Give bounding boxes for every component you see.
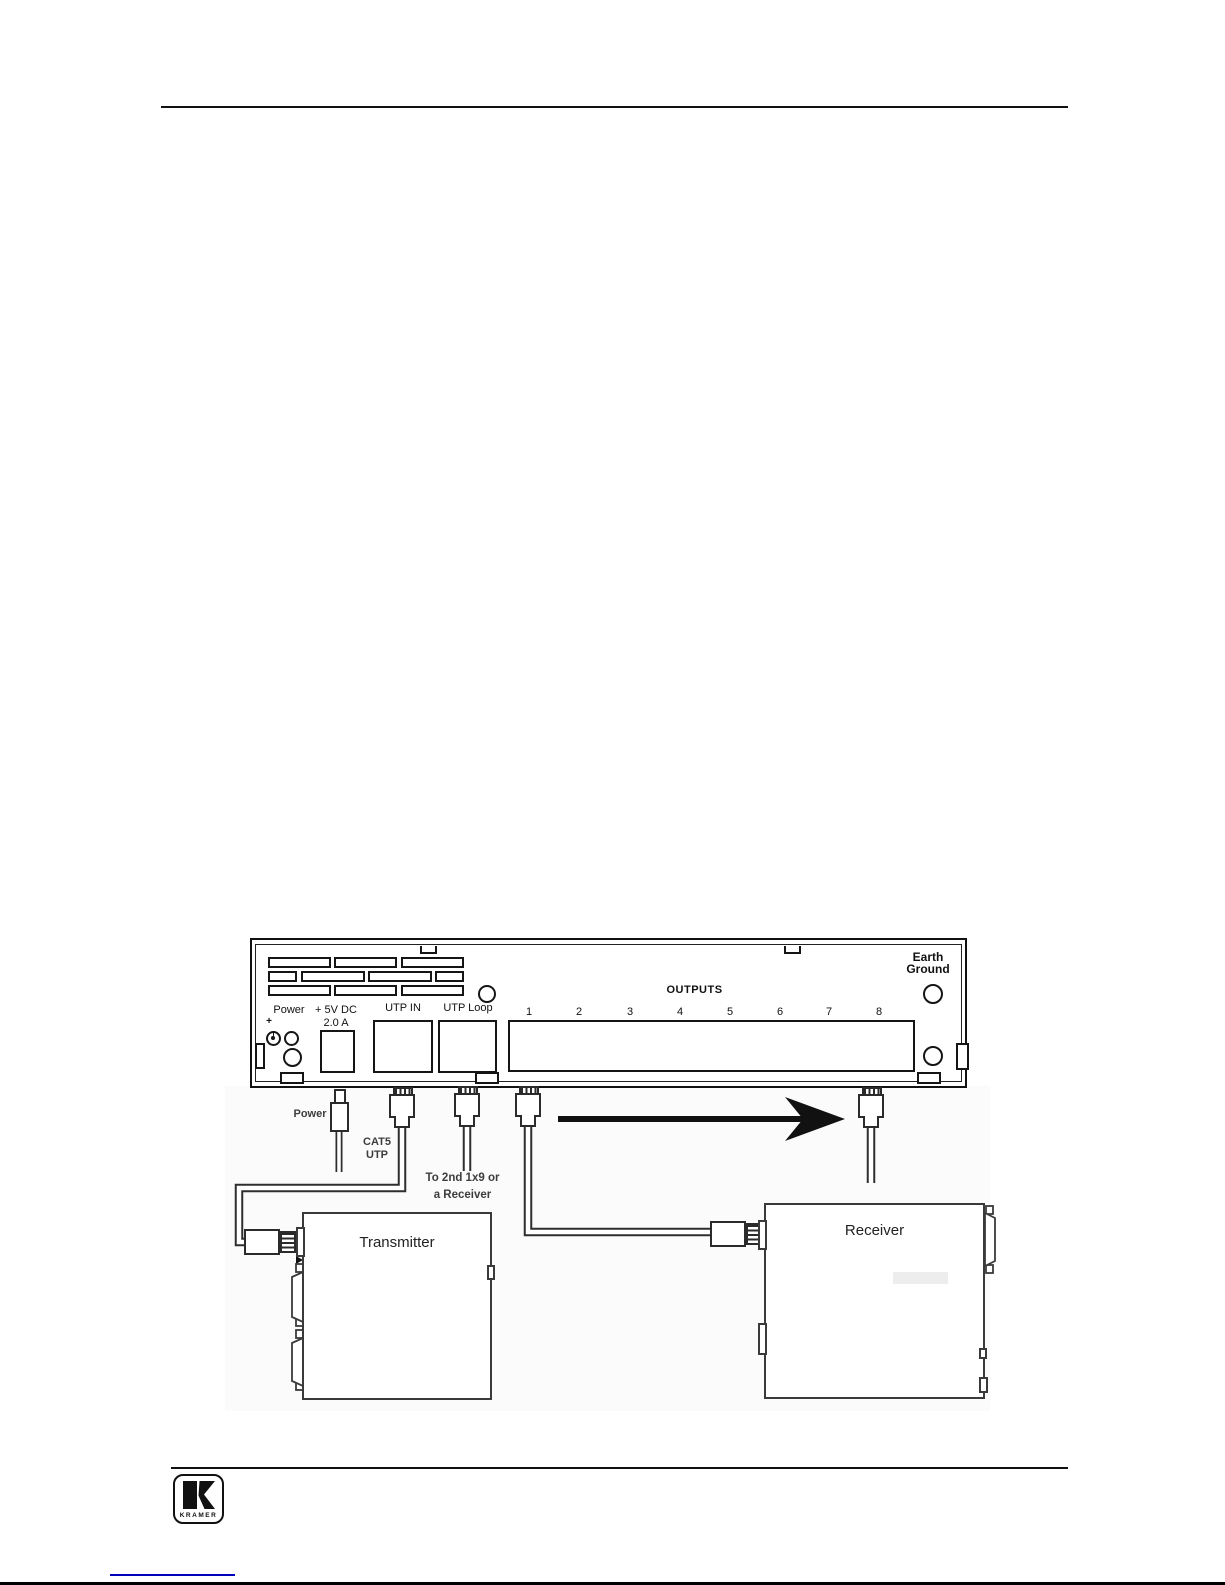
transmitter-rj45-port xyxy=(296,1227,305,1257)
utp-in-label: UTP IN xyxy=(372,1002,434,1014)
output-number-1: 1 xyxy=(517,1006,541,1018)
manual-page: Earth Ground OUTPUTS 1 2 3 4 5 6 7 8 Pow… xyxy=(0,0,1225,1585)
vent-slot xyxy=(334,957,397,968)
screw-hole-right xyxy=(923,1046,943,1066)
panel-bottom-notch xyxy=(280,1072,304,1084)
transmitter-plug-icon xyxy=(244,1229,294,1255)
transmitter-label: Transmitter xyxy=(304,1234,490,1251)
panel-bottom-notch xyxy=(917,1072,941,1084)
power-plug-icon xyxy=(330,1102,349,1132)
panel-right-tab xyxy=(956,1043,969,1070)
transmitter-right-tab xyxy=(487,1265,495,1280)
rear-panel: Earth Ground OUTPUTS 1 2 3 4 5 6 7 8 Pow… xyxy=(250,938,967,1088)
output8-plug-icon xyxy=(858,1087,886,1127)
receiver-plug-icon xyxy=(710,1221,760,1247)
vent-slot xyxy=(301,971,365,982)
outputs-label: OUTPUTS xyxy=(642,984,747,996)
transmitter-box: Transmitter xyxy=(302,1212,492,1400)
utp-label: UTP xyxy=(366,1149,388,1161)
rj45-body xyxy=(389,1094,415,1118)
kramer-logo: KRAMER xyxy=(173,1474,224,1524)
rj45-body xyxy=(710,1221,746,1247)
earth-ground-label2: Ground xyxy=(906,962,949,976)
receiver-left-tab xyxy=(758,1323,767,1355)
utp-loop-socket xyxy=(438,1020,497,1073)
cat5-label: CAT5 xyxy=(363,1136,391,1148)
receiver-label: Receiver xyxy=(766,1222,983,1239)
vent-slot xyxy=(268,971,297,982)
dc-jack-dot xyxy=(271,1036,275,1040)
loop-plug-icon xyxy=(454,1086,482,1126)
power-cable-label: Power xyxy=(288,1108,332,1121)
receiver-box: Receiver xyxy=(764,1203,985,1399)
vent-slot xyxy=(268,957,331,968)
hyperlink-underline[interactable] xyxy=(110,1574,235,1576)
rj45-neck xyxy=(459,1115,475,1127)
rj45-body xyxy=(244,1229,280,1255)
outputs-socket-strip xyxy=(508,1020,915,1072)
footer-rule xyxy=(171,1467,1068,1469)
rj45-body xyxy=(858,1094,884,1118)
vent-slot xyxy=(268,985,331,996)
earth-ground-terminal xyxy=(923,984,943,1004)
kramer-logo-text: KRAMER xyxy=(175,1512,222,1519)
rj45-neck xyxy=(394,1116,410,1128)
rj45-body xyxy=(454,1093,480,1117)
vent-slot xyxy=(401,957,464,968)
loop-destination-label: To 2nd 1x9 or xyxy=(415,1172,510,1185)
receiver-rj45-port xyxy=(758,1220,767,1250)
vent-slot xyxy=(368,971,432,982)
output-number-3: 3 xyxy=(618,1006,642,1018)
output-number-5: 5 xyxy=(718,1006,742,1018)
dc-plus-label: + xyxy=(263,1016,275,1027)
panel-top-notch xyxy=(784,946,801,954)
loop-destination-label2: a Receiver xyxy=(415,1189,510,1202)
header-rule xyxy=(161,106,1068,108)
receiver-right-tab2 xyxy=(979,1377,988,1393)
dc-current-label: 2.0 A xyxy=(305,1017,367,1029)
receiver-right-tab xyxy=(979,1348,987,1359)
output-number-4: 4 xyxy=(668,1006,692,1018)
panel-bottom-notch xyxy=(475,1072,499,1084)
output-number-8: 8 xyxy=(867,1006,891,1018)
output-number-7: 7 xyxy=(817,1006,841,1018)
cat5-plug-icon xyxy=(389,1087,417,1127)
vent-slot xyxy=(334,985,397,996)
vent-slot xyxy=(435,971,464,982)
output-number-6: 6 xyxy=(768,1006,792,1018)
utp-loop-label: UTP Loop xyxy=(432,1002,504,1014)
vent-slot xyxy=(401,985,464,996)
panel-left-tab xyxy=(255,1043,265,1069)
rj45-pins xyxy=(280,1231,296,1253)
rj45-neck xyxy=(863,1116,879,1128)
screw-hole xyxy=(283,1048,302,1067)
dc-voltage-label: + 5V DC xyxy=(305,1004,367,1016)
output1-plug-icon xyxy=(515,1086,543,1126)
receiver-watermark xyxy=(893,1272,948,1284)
panel-screw-hole xyxy=(478,985,496,1003)
utp-in-socket xyxy=(373,1020,433,1073)
rj45-body xyxy=(515,1093,541,1117)
power-socket xyxy=(320,1030,355,1073)
panel-top-notch xyxy=(420,946,437,954)
output-number-2: 2 xyxy=(567,1006,591,1018)
rj45-neck xyxy=(520,1115,536,1127)
led-hole xyxy=(284,1031,299,1046)
